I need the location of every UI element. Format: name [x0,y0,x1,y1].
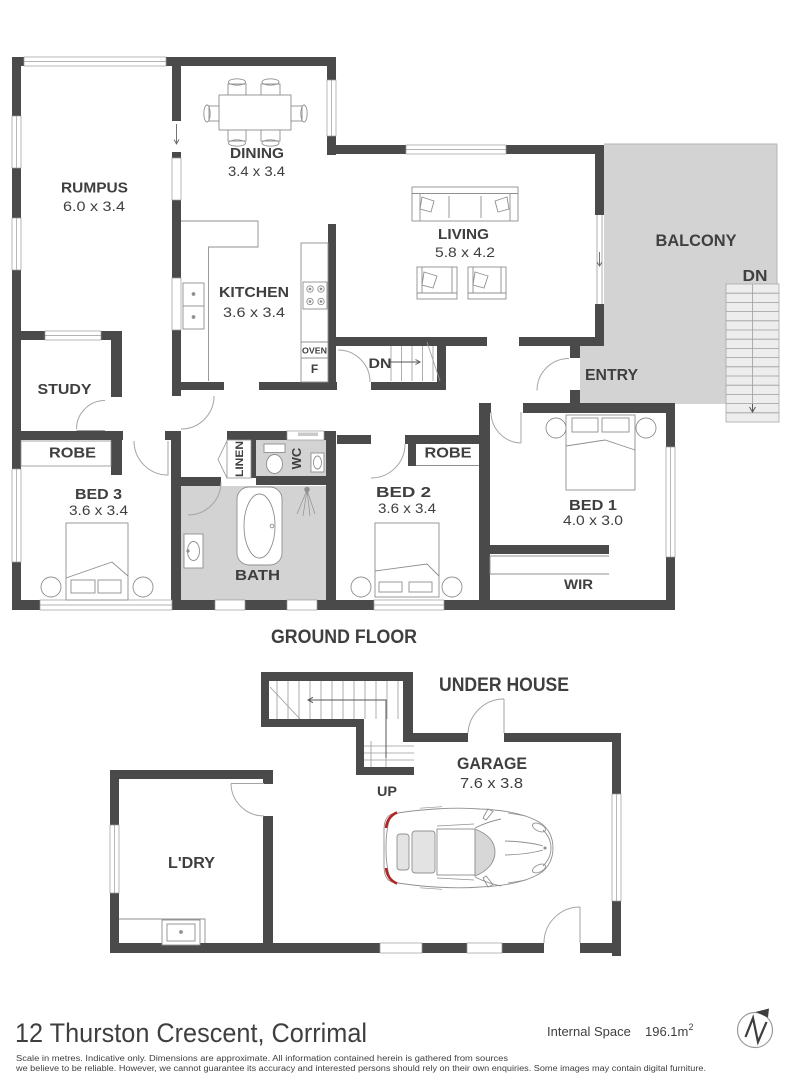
svg-text:ROBE: ROBE [425,445,472,462]
svg-text:BATH: BATH [235,568,280,584]
svg-text:LINEN: LINEN [234,441,246,477]
svg-text:GARAGE: GARAGE [457,755,527,773]
svg-text:WIR: WIR [564,576,593,592]
svg-text:BED 2: BED 2 [376,485,431,501]
svg-text:ROBE: ROBE [49,445,96,462]
svg-text:F: F [311,362,318,376]
svg-text:WC: WC [289,447,304,469]
svg-text:BED 3: BED 3 [75,487,122,503]
svg-text:DN: DN [369,355,392,371]
svg-text:6.0 x 3.4: 6.0 x 3.4 [63,198,125,214]
svg-text:DINING: DINING [230,146,284,162]
svg-text:KITCHEN: KITCHEN [219,284,289,301]
svg-text:3.6 x 3.4: 3.6 x 3.4 [69,502,128,518]
svg-text:196.1m: 196.1m [645,1024,688,1039]
svg-text:UNDER HOUSE: UNDER HOUSE [439,675,569,696]
svg-text:GROUND FLOOR: GROUND FLOOR [271,626,417,648]
svg-text:Internal Space: Internal Space [547,1024,631,1039]
svg-text:3.6 x 3.4: 3.6 x 3.4 [223,304,285,320]
svg-text:3.4 x 3.4: 3.4 x 3.4 [228,163,285,179]
svg-text:OVEN: OVEN [302,347,327,356]
svg-text:2: 2 [689,1022,694,1032]
svg-text:7.6 x 3.8: 7.6 x 3.8 [460,775,523,792]
svg-text:12 Thurston Crescent, Corrimal: 12 Thurston Crescent, Corrimal [15,1018,367,1048]
svg-text:3.6 x 3.4: 3.6 x 3.4 [378,500,436,516]
svg-text:ENTRY: ENTRY [585,367,639,384]
svg-text:UP: UP [377,783,397,799]
svg-text:L'DRY: L'DRY [168,855,215,872]
svg-text:we believe to be reliable. How: we believe to be reliable. However, we c… [15,1064,706,1073]
svg-text:BALCONY: BALCONY [656,231,738,250]
svg-text:Scale in metres. Indicative on: Scale in metres. Indicative only. Dimens… [16,1054,508,1063]
svg-text:RUMPUS: RUMPUS [61,180,128,197]
svg-text:4.0 x 3.0: 4.0 x 3.0 [563,512,623,528]
svg-text:5.8 x 4.2: 5.8 x 4.2 [435,244,495,260]
svg-text:STUDY: STUDY [38,382,92,398]
svg-text:DN: DN [743,268,768,285]
svg-text:LIVING: LIVING [438,226,489,243]
